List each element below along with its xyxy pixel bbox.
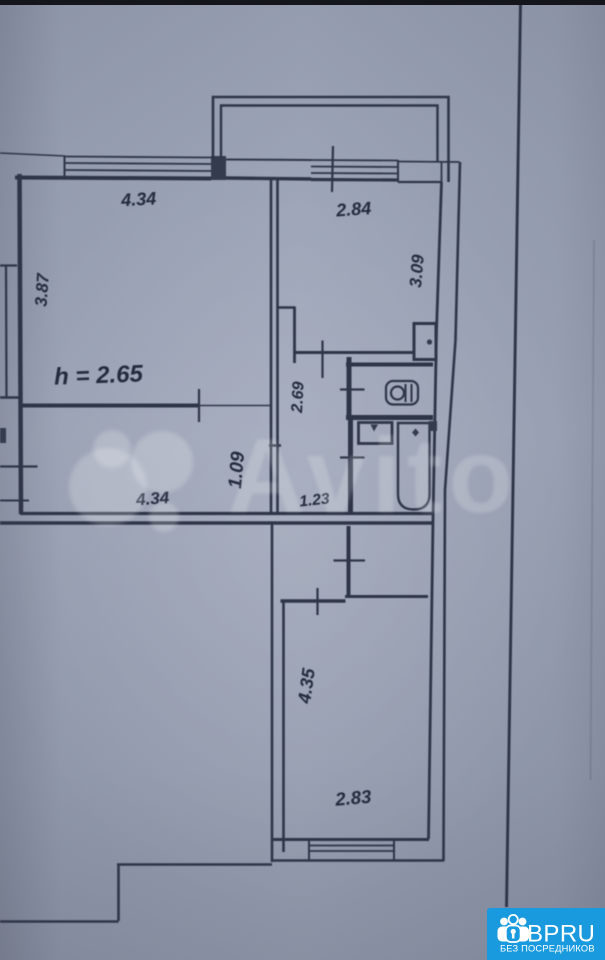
svg-text:БЕЗ ПОСРЕДНИКОВ: БЕЗ ПОСРЕДНИКОВ — [500, 944, 595, 954]
